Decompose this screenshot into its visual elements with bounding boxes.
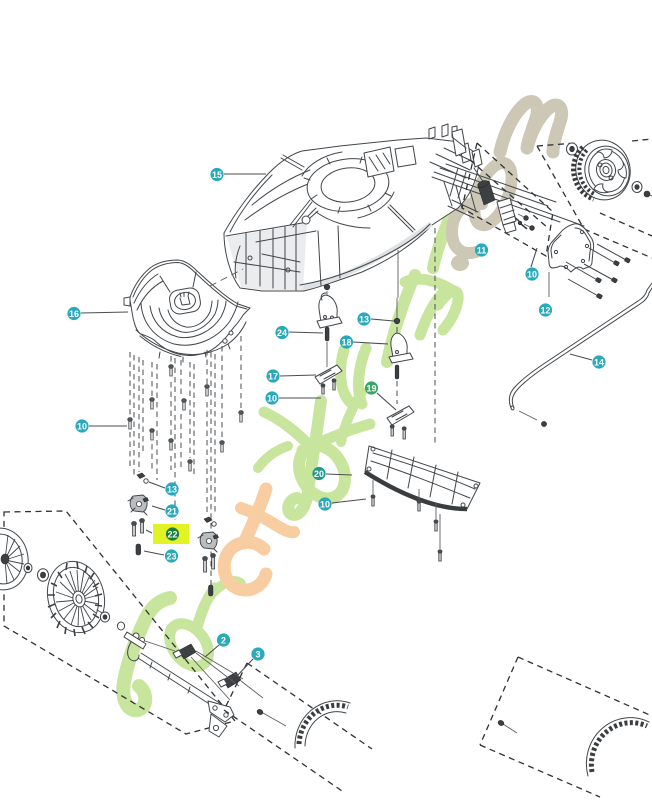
svg-text:10: 10 <box>320 499 330 509</box>
svg-text:17: 17 <box>268 371 278 381</box>
svg-text:11: 11 <box>477 245 487 255</box>
svg-text:10: 10 <box>77 421 87 431</box>
svg-text:22: 22 <box>167 529 177 539</box>
svg-text:2: 2 <box>221 635 226 645</box>
svg-text:10: 10 <box>527 269 537 279</box>
svg-text:13: 13 <box>167 484 177 494</box>
svg-text:13: 13 <box>359 314 369 324</box>
svg-text:18: 18 <box>341 337 351 347</box>
svg-text:20: 20 <box>314 469 324 479</box>
svg-text:10: 10 <box>267 393 277 403</box>
svg-text:24: 24 <box>277 328 287 338</box>
svg-text:12: 12 <box>540 305 550 315</box>
svg-text:15: 15 <box>212 170 222 180</box>
svg-text:19: 19 <box>366 383 376 393</box>
svg-text:23: 23 <box>166 551 176 561</box>
svg-text:3: 3 <box>255 649 260 659</box>
svg-text:14: 14 <box>594 357 604 367</box>
svg-text:21: 21 <box>167 506 177 516</box>
svg-text:16: 16 <box>69 309 79 319</box>
